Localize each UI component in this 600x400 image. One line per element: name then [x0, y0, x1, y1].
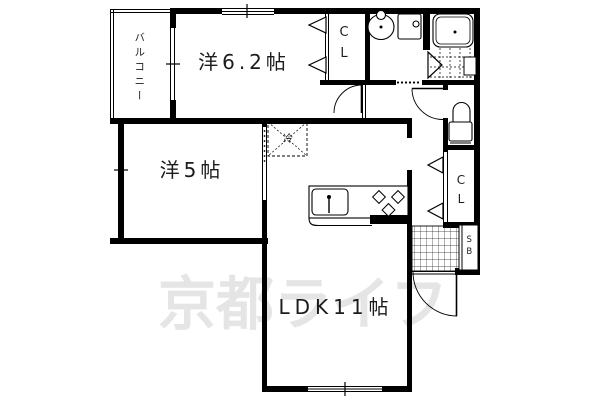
closet-right-label: CL — [455, 173, 467, 211]
ldk-label: LDK11帖 — [278, 297, 393, 317]
washing-machine-pan — [398, 14, 421, 39]
toilet — [449, 103, 472, 144]
room-6-2-label: 洋6.2帖 — [198, 52, 290, 72]
shoe-box-label: SB — [465, 235, 474, 259]
entrance-door-arc — [413, 272, 457, 316]
refrigerator-label: 冷 — [283, 135, 293, 145]
floorplan-canvas: 京都ライフ — [0, 0, 600, 400]
room-5-label: 洋5帖 — [160, 160, 225, 180]
entrance-tile — [412, 226, 459, 271]
bedroom-door-arc — [334, 85, 362, 113]
washbasin — [368, 11, 394, 40]
kitchen-sink — [312, 189, 348, 215]
balcony-label: バルコニー — [134, 32, 145, 105]
toilet-door-arc — [412, 89, 443, 120]
floorplan-drawing — [0, 0, 600, 400]
bathtub — [433, 14, 473, 47]
closet-top-label: CL — [338, 25, 351, 67]
